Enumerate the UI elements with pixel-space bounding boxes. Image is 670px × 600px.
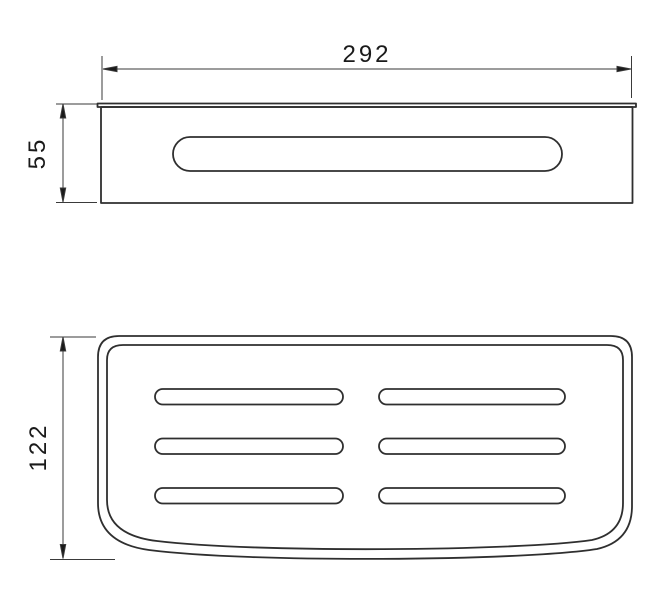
basket-outer-outline — [98, 336, 632, 559]
height-dim-label: 55 — [24, 137, 51, 170]
depth-dimension: 122 — [25, 337, 115, 560]
top-view — [98, 336, 632, 559]
depth-dim-label: 122 — [25, 422, 52, 471]
width-dim-label: 292 — [342, 41, 391, 68]
drain-slot-6 — [379, 488, 565, 504]
front-view-slot — [173, 137, 562, 171]
drain-slot-2 — [379, 389, 565, 405]
front-view-body — [101, 107, 633, 203]
width-dim-arrow-left — [103, 66, 117, 71]
front-view — [98, 104, 637, 204]
width-dim-arrow-right — [617, 66, 631, 71]
technical-drawing: 292 55 — [0, 0, 670, 600]
drawing-canvas: 292 55 — [0, 0, 670, 600]
height-dimension: 55 — [24, 104, 97, 203]
height-dim-arrow-bottom — [60, 188, 65, 202]
depth-dim-arrow-bottom — [60, 545, 65, 559]
height-dim-arrow-top — [60, 104, 65, 118]
width-dimension: 292 — [102, 41, 632, 100]
depth-dim-arrow-top — [60, 337, 65, 351]
drain-slot-3 — [155, 439, 343, 455]
drain-slot-1 — [155, 389, 343, 405]
drain-slot-5 — [155, 488, 343, 504]
basket-inner-outline — [107, 345, 623, 549]
drain-slot-4 — [379, 439, 565, 455]
